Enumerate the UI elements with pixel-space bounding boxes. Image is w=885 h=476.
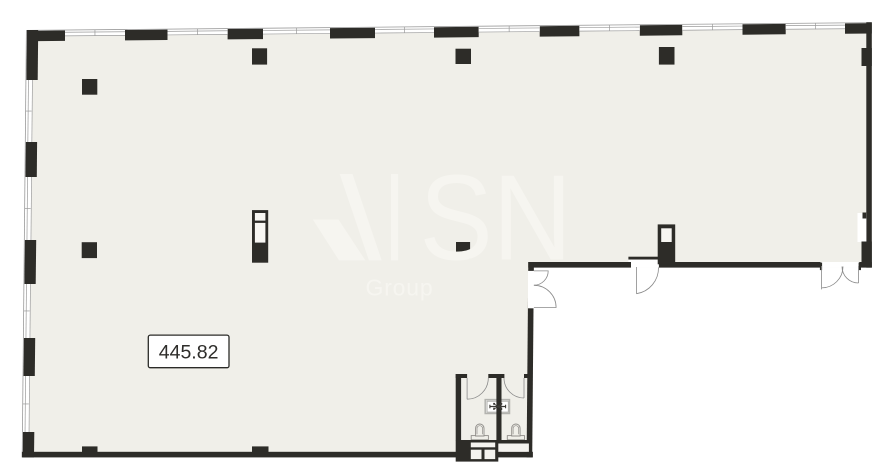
svg-text:SN: SN [420, 149, 573, 286]
svg-text:Group: Group [366, 275, 434, 301]
svg-text:445.82: 445.82 [159, 342, 219, 364]
